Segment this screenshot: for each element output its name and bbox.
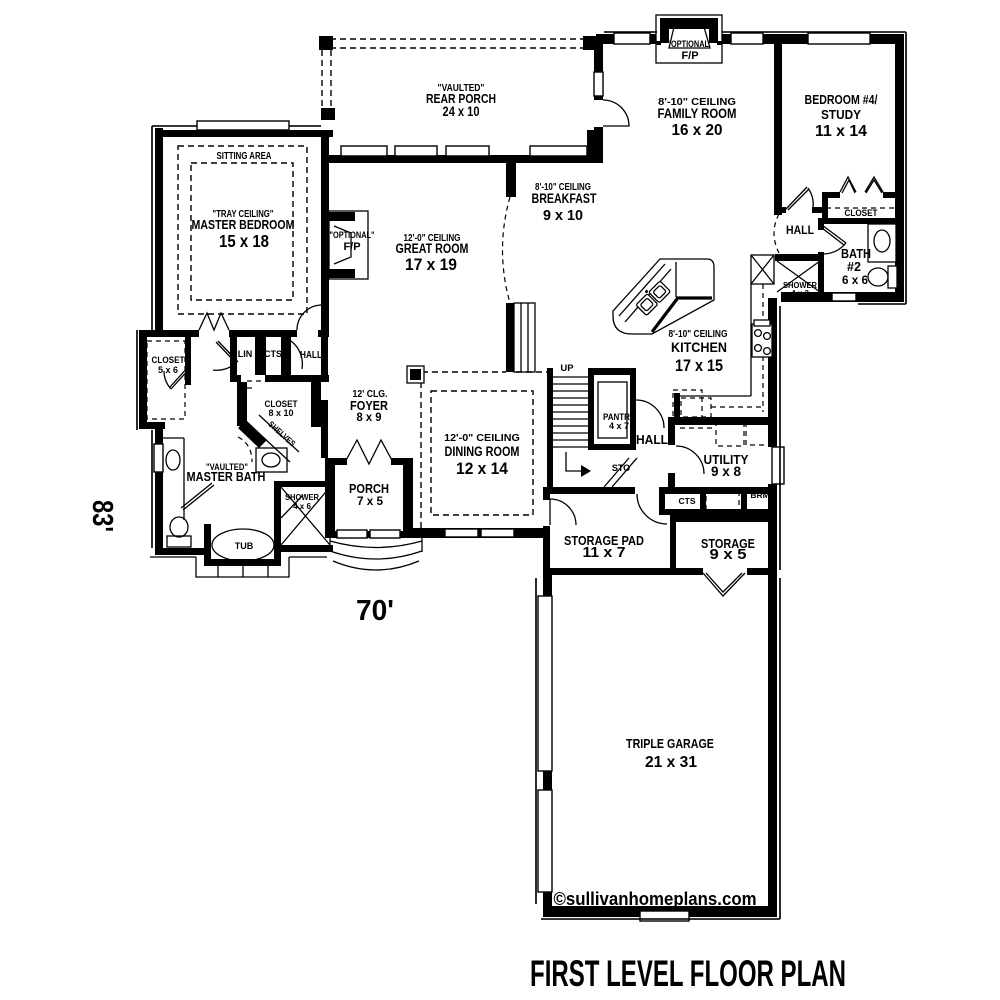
- svg-text:4 x 6: 4 x 6: [293, 502, 311, 511]
- svg-text:MASTER BATH: MASTER BATH: [187, 470, 266, 484]
- svg-text:FIRST LEVEL FLOOR PLAN: FIRST LEVEL FLOOR PLAN: [530, 953, 846, 995]
- svg-text:12 x 14: 12 x 14: [456, 459, 508, 478]
- svg-text:CTS: CTS: [264, 349, 282, 359]
- svg-text:TRIPLE GARAGE: TRIPLE GARAGE: [626, 736, 714, 751]
- svg-text:7 x 5: 7 x 5: [357, 494, 383, 508]
- svg-text:STUDY: STUDY: [821, 107, 862, 122]
- svg-text:21 x 31: 21 x 31: [645, 754, 697, 771]
- svg-text:5 x 6: 5 x 6: [158, 365, 178, 375]
- svg-text:8 x 9: 8 x 9: [357, 411, 382, 424]
- svg-text:"OPTIONAL": "OPTIONAL": [668, 38, 713, 49]
- svg-text:GREAT ROOM: GREAT ROOM: [396, 241, 469, 257]
- svg-text:BATH: BATH: [841, 246, 871, 261]
- svg-text:FAMILY ROOM: FAMILY ROOM: [658, 106, 737, 121]
- svg-text:CTS: CTS: [679, 496, 696, 506]
- svg-text:83': 83': [86, 500, 119, 532]
- svg-text:"OPTIONAL": "OPTIONAL": [330, 229, 375, 240]
- svg-text:12' CLG.: 12' CLG.: [353, 388, 388, 399]
- svg-text:6 x 6: 6 x 6: [842, 275, 869, 287]
- svg-text:70': 70': [356, 595, 394, 627]
- svg-text:HALL: HALL: [300, 349, 322, 361]
- svg-text:LIN: LIN: [238, 349, 253, 359]
- svg-text:24 x 10: 24 x 10: [443, 104, 480, 120]
- svg-text:©sullivanhomeplans.com: ©sullivanhomeplans.com: [553, 888, 756, 909]
- svg-text:8'-10" CEILING: 8'-10" CEILING: [669, 328, 728, 339]
- svg-text:12'-0" CEILING: 12'-0" CEILING: [444, 433, 520, 444]
- svg-text:8 x 10: 8 x 10: [268, 408, 293, 418]
- svg-text:KITCHEN: KITCHEN: [671, 339, 727, 355]
- svg-text:4 x 3: 4 x 3: [791, 289, 809, 298]
- svg-text:CLOSET: CLOSET: [152, 354, 185, 365]
- svg-text:11 x 14: 11 x 14: [815, 123, 867, 140]
- svg-text:DINING ROOM: DINING ROOM: [445, 444, 520, 459]
- svg-text:HALL: HALL: [636, 433, 668, 448]
- svg-text:HALL: HALL: [786, 224, 814, 237]
- svg-text:17 x 15: 17 x 15: [675, 357, 723, 375]
- svg-text:F/P: F/P: [681, 50, 698, 62]
- svg-text:F/P: F/P: [343, 241, 360, 253]
- svg-text:MASTER BEDROOM: MASTER BEDROOM: [192, 217, 295, 232]
- svg-text:17 x 19: 17 x 19: [405, 255, 457, 274]
- svg-text:BREAKFAST: BREAKFAST: [532, 191, 597, 207]
- svg-text:#2: #2: [847, 260, 861, 274]
- svg-text:9 x 8: 9 x 8: [711, 464, 741, 479]
- svg-text:SITTING AREA: SITTING AREA: [217, 150, 272, 161]
- svg-text:TUB: TUB: [235, 541, 254, 551]
- svg-text:BRM: BRM: [750, 490, 769, 500]
- svg-text:CLOSET: CLOSET: [845, 208, 879, 218]
- svg-text:4 x 7: 4 x 7: [609, 421, 629, 431]
- svg-text:9 x 5: 9 x 5: [710, 547, 747, 563]
- svg-text:STO: STO: [612, 463, 630, 473]
- svg-text:SHOWER: SHOWER: [285, 493, 319, 503]
- svg-text:UP: UP: [560, 363, 574, 374]
- svg-text:9 x 10: 9 x 10: [543, 208, 583, 224]
- svg-text:15 x 18: 15 x 18: [219, 232, 269, 251]
- svg-text:BEDROOM #4/: BEDROOM #4/: [805, 92, 879, 107]
- svg-text:11 x 7: 11 x 7: [583, 544, 626, 561]
- svg-text:16 x 20: 16 x 20: [672, 122, 723, 139]
